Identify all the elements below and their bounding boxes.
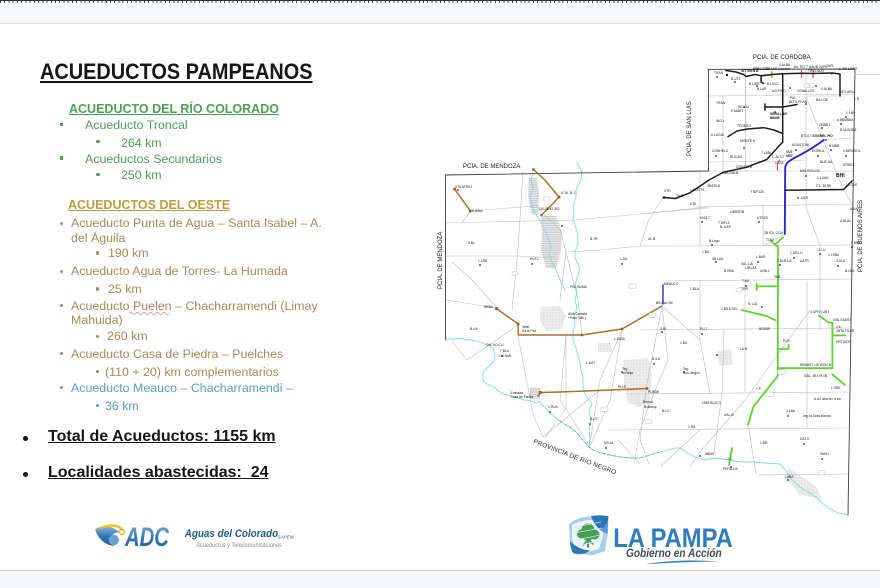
svg-text:11 LU: 11 LU bbox=[817, 248, 826, 252]
svg-text:UAEBR.Sandrini: UAEBR.Sandrini bbox=[766, 67, 791, 71]
svg-text:LL GUE: LL GUE bbox=[846, 183, 858, 187]
svg-text:L.BAR: L.BAR bbox=[756, 255, 766, 259]
svg-text:BTI.ARLL: BTI.ARLL bbox=[841, 90, 855, 94]
svg-text:B.LU: B.LU bbox=[662, 409, 670, 413]
svg-text:A.BLAL: A.BLAL bbox=[840, 219, 851, 223]
svg-text:Bon Jargon: Bon Jargon bbox=[683, 371, 700, 375]
svg-text:3UEU: 3UEU bbox=[820, 452, 829, 456]
svg-text:3UPL: 3UPL bbox=[826, 64, 834, 68]
svg-text:ADC: ADC bbox=[124, 522, 169, 553]
svg-text:PCIA. DE BUENOS AIRES: PCIA. DE BUENOS AIRES bbox=[858, 200, 864, 272]
svg-text:CEBALLOS: CEBALLOS bbox=[797, 89, 815, 93]
svg-text:PU3: PU3 bbox=[783, 339, 790, 343]
svg-text:1 LUAN: 1 LUAN bbox=[817, 176, 829, 180]
svg-text:B. UATI: B. UATI bbox=[720, 225, 731, 229]
svg-text:E.MART: E.MART bbox=[731, 109, 743, 113]
svg-text:DORILA: DORILA bbox=[812, 149, 825, 153]
svg-text:HRTWOE: HRTWOE bbox=[836, 340, 851, 344]
svg-text:PUB3B: PUB3B bbox=[648, 390, 660, 394]
svg-text:UL.B: UL.B bbox=[648, 237, 656, 241]
svg-text:A LUGIA: A LUGIA bbox=[711, 133, 725, 137]
svg-text:PCIA. DE SAN LUIS: PCIA. DE SAN LUIS bbox=[687, 101, 693, 156]
svg-text:VTR: VTR bbox=[664, 189, 671, 193]
svg-text:MIG.RIGLOS: MIG.RIGLOS bbox=[800, 169, 820, 173]
svg-text:PCIA. DE CORDOBA: PCIA. DE CORDOBA bbox=[753, 55, 811, 61]
svg-text:UB7: UB7 bbox=[786, 154, 793, 158]
svg-text:BB-BIA HM: BB-BIA HM bbox=[656, 301, 673, 305]
svg-text:Begral: Begral bbox=[643, 400, 653, 404]
svg-text:3UB: 3UB bbox=[774, 275, 781, 279]
svg-text:TRAN: TRAN bbox=[716, 101, 726, 105]
svg-text:AG.PICO: AG.PICO bbox=[772, 89, 786, 93]
svg-text:LIBRZOB: LIBRZOB bbox=[730, 210, 745, 214]
svg-text:ABIA: ABIA bbox=[850, 207, 858, 211]
svg-text:LUA-UNLB: LUA-UNLB bbox=[722, 171, 739, 175]
svg-text:BLTIL PLAN: BLTIL PLAN bbox=[789, 100, 808, 104]
svg-text:L.UAT: L.UAT bbox=[586, 361, 595, 365]
svg-text:J.C.: J.C. bbox=[727, 457, 733, 461]
svg-text:1. ALTO: 1. ALTO bbox=[772, 155, 784, 159]
svg-text:1 14B: 1 14B bbox=[846, 111, 855, 115]
svg-text:Aguas del Colorado: Aguas del Colorado bbox=[184, 528, 279, 540]
svg-text:B BBIA: B BBIA bbox=[472, 209, 483, 213]
svg-text:LIR.UIA: LIR.UIA bbox=[745, 266, 757, 270]
svg-text:T BIF1Z0: T BIF1Z0 bbox=[750, 190, 764, 194]
svg-text:2MBB 1: 2MBB 1 bbox=[819, 123, 831, 127]
svg-text:A la I aba ta I a ba: A la I aba ta I a ba bbox=[814, 397, 841, 401]
svg-text:Ing. la Gras Banda: Ing. la Gras Banda bbox=[803, 414, 831, 418]
svg-text:3.RL: 3.RL bbox=[660, 327, 667, 331]
svg-text:2B ITA. COA: 2B ITA. COA bbox=[764, 231, 784, 235]
svg-text:LU.B: LU.B bbox=[740, 347, 748, 351]
svg-text:GBL. 3B LPLTB: GBL. 3B LPLTB bbox=[804, 374, 828, 378]
svg-text:R.LIGC: R.LIGC bbox=[767, 82, 779, 86]
svg-text:BA LOB: BA LOB bbox=[816, 98, 829, 102]
svg-text:MONTE N: MONTE N bbox=[740, 139, 756, 143]
svg-text:SPELUZZI: SPELUZZI bbox=[753, 67, 769, 71]
svg-text:3.BL: 3.BL bbox=[468, 241, 475, 245]
svg-text:ITL. B13B: ITL. B13B bbox=[816, 184, 831, 188]
svg-text:Sa la Paz: Sa la Paz bbox=[522, 329, 536, 333]
svg-text:BsBarup: BsBarup bbox=[644, 405, 657, 409]
svg-text:7 LBBL: 7 LBBL bbox=[761, 151, 772, 155]
svg-text:1.LRB: 1.LRB bbox=[478, 259, 488, 263]
svg-text:ANG.7: ANG.7 bbox=[700, 216, 710, 220]
svg-text:BUE.UA: BUE.UA bbox=[820, 160, 833, 164]
svg-text:B.UT: B.UT bbox=[590, 417, 598, 421]
svg-text:CONHELO: CONHELO bbox=[712, 149, 729, 153]
svg-text:1.UR.LU: 1.UR.LU bbox=[790, 251, 803, 255]
svg-text:V.MIRASOL: V.MIRASOL bbox=[843, 149, 861, 153]
svg-text:L OBE: L OBE bbox=[831, 386, 841, 390]
svg-text:RU.B: RU.B bbox=[618, 385, 627, 389]
svg-text:1555 BL3CO: 1555 BL3CO bbox=[702, 401, 721, 405]
svg-text:1.BLR.UA: 1.BLR.UA bbox=[777, 259, 792, 263]
svg-text:N. LIA: N. LIA bbox=[748, 302, 758, 306]
svg-text:1UU3DEL BO: 1UU3DEL BO bbox=[539, 207, 560, 211]
svg-text:B.TR: B.TR bbox=[590, 237, 598, 241]
svg-text:1.RA: 1.RA bbox=[688, 425, 696, 429]
svg-text:PCIA. DE MENDOZA: PCIA. DE MENDOZA bbox=[438, 232, 444, 289]
svg-text:3.LBA: 3.LBA bbox=[786, 409, 796, 413]
svg-text:B.Lngu: B.Lngu bbox=[709, 239, 720, 243]
svg-text:3B.LUA: 3B.LUA bbox=[712, 257, 724, 261]
svg-text:1.RUA: 1.RUA bbox=[548, 405, 559, 409]
svg-text:LABA: LABA bbox=[785, 475, 794, 479]
svg-text:la Reija: la Reija bbox=[622, 371, 633, 375]
svg-text:1 CUITTIL: 1 CUITTIL bbox=[690, 188, 705, 192]
svg-text:RU.7: RU.7 bbox=[700, 327, 708, 331]
svg-text:B.UA: B.UA bbox=[470, 327, 478, 331]
svg-text:B.LAR: B.LAR bbox=[757, 87, 767, 91]
svg-text:AGUSTONI: AGUSTONI bbox=[792, 143, 809, 147]
svg-text:Acueductos y Telecomunicacione: Acueductos y Telecomunicaciones bbox=[196, 543, 282, 549]
svg-text:B.RBU: B.RBU bbox=[724, 269, 735, 273]
svg-text:1.BU: 1.BU bbox=[680, 341, 688, 345]
svg-text:RBRAST US WOU B: RBRAST US WOU B bbox=[800, 363, 832, 367]
svg-text:TRAN: TRAN bbox=[714, 71, 724, 75]
svg-text:MEAUCO: MEAUCO bbox=[664, 282, 679, 286]
svg-text:1.BR: 1.BR bbox=[760, 441, 768, 445]
svg-text:3RATILD: 3RATILD bbox=[707, 184, 721, 188]
svg-text:PIN. BUMA: PIN. BUMA bbox=[570, 285, 588, 289]
svg-text:TILR: TILR bbox=[676, 194, 684, 198]
svg-text:3.ULA: 3.ULA bbox=[836, 259, 846, 263]
svg-text:a BBMBBA: a BBMBBA bbox=[837, 118, 854, 122]
svg-text:T.BU: T.BU bbox=[742, 279, 750, 283]
svg-text:J.W NaN: J.W NaN bbox=[498, 354, 512, 358]
svg-text:GONZNLB: GONZNLB bbox=[736, 165, 753, 169]
svg-text:+Para 3dB.): +Para 3dB.) bbox=[568, 316, 586, 320]
svg-text:PCIA. DE MENDOZA: PCIA. DE MENDOZA bbox=[463, 164, 520, 170]
svg-text:UAT.3: UAT.3 bbox=[800, 437, 809, 441]
svg-text:BHI: BHI bbox=[836, 173, 845, 179]
svg-text:UTRZ: UTRZ bbox=[775, 161, 784, 165]
svg-text:ING.L: ING.L bbox=[716, 119, 725, 123]
svg-text:BBUB: BBUB bbox=[770, 116, 780, 120]
svg-text:SAPEM: SAPEM bbox=[278, 534, 294, 539]
svg-text:3NTA TILER: 3NTA TILER bbox=[836, 329, 855, 333]
svg-text:TRV.LAUQ: TRV.LAUQ bbox=[808, 69, 825, 73]
svg-text:ON. VO.CLI: ON. VO.CLI bbox=[486, 343, 504, 347]
svg-text:B.UTZ: B.UTZ bbox=[731, 77, 741, 81]
svg-text:1 LRBa: 1 LRBa bbox=[828, 253, 839, 257]
svg-text:VTA ATRVZ: VTA ATRVZ bbox=[455, 185, 472, 189]
svg-text:1 BRB: 1 BRB bbox=[851, 241, 861, 245]
svg-text:RUCAN: RUCAN bbox=[730, 155, 742, 159]
svg-text:B. UATI: B. UATI bbox=[797, 196, 808, 200]
svg-text:1.UA: 1.UA bbox=[620, 257, 628, 261]
svg-text:ABND: ABND bbox=[705, 452, 715, 456]
svg-text:1.BLA: 1.BLA bbox=[690, 287, 700, 291]
svg-text:A.TA. B.-C: A.TA. B.-C bbox=[561, 191, 577, 195]
svg-text:L.31BA: L.31BA bbox=[614, 337, 626, 341]
svg-text:BTLA TIBB: BTLA TIBB bbox=[801, 134, 818, 138]
svg-text:B MBB: B MBB bbox=[829, 144, 840, 148]
svg-text:UTA: UTA bbox=[690, 202, 697, 206]
svg-text:B.LIER: B.LIER bbox=[749, 82, 760, 86]
svg-text:UATR: UATR bbox=[800, 259, 809, 263]
svg-text:TOW: TOW bbox=[766, 238, 775, 242]
svg-text:V.ALBA: V.ALBA bbox=[821, 87, 833, 91]
svg-text:Casa de Piedra: Casa de Piedra bbox=[511, 395, 534, 399]
svg-text:RUT.L: RUT.L bbox=[530, 257, 539, 261]
svg-text:L. BA LIBRT: L. BA LIBRT bbox=[839, 67, 857, 71]
svg-text:GBRL PIO: GBRL PIO bbox=[817, 134, 833, 138]
svg-text:7.BLA: 7.BLA bbox=[500, 349, 510, 353]
svg-text:BRADE: BRADE bbox=[759, 327, 771, 331]
svg-text:BBBA: BBBA bbox=[484, 305, 494, 309]
svg-text:4.UPH LUB I: 4.UPH LUB I bbox=[810, 310, 829, 314]
svg-text:UR.AL: UR.AL bbox=[604, 441, 614, 445]
svg-text:Gobierno en Acción: Gobierno en Acción bbox=[626, 547, 722, 560]
svg-text:TEOBRO: TEOBRO bbox=[737, 124, 751, 128]
svg-text:UNB.L: UNB.L bbox=[760, 269, 770, 273]
svg-text:B.LBA: B.LBA bbox=[845, 269, 855, 273]
svg-text:1 BILA DEL: 1 BILA DEL bbox=[721, 307, 738, 311]
svg-text:V.ALBA: V.ALBA bbox=[779, 63, 791, 67]
svg-text:1.P: 1.P bbox=[756, 387, 762, 391]
svg-text:B.ILA: B.ILA bbox=[652, 357, 661, 361]
svg-text:UAL.B: UAL.B bbox=[724, 413, 734, 417]
svg-text:GBL SAUSS: GBL SAUSS bbox=[833, 318, 852, 322]
svg-text:1 B: 1 B bbox=[854, 97, 860, 101]
svg-text:B ULBOBA: B ULBOBA bbox=[840, 128, 857, 132]
svg-text:UTRZS: UTRZS bbox=[757, 216, 769, 220]
svg-text:1 BU: 1 BU bbox=[702, 250, 710, 254]
svg-text:ATREU: ATREU bbox=[843, 163, 855, 167]
